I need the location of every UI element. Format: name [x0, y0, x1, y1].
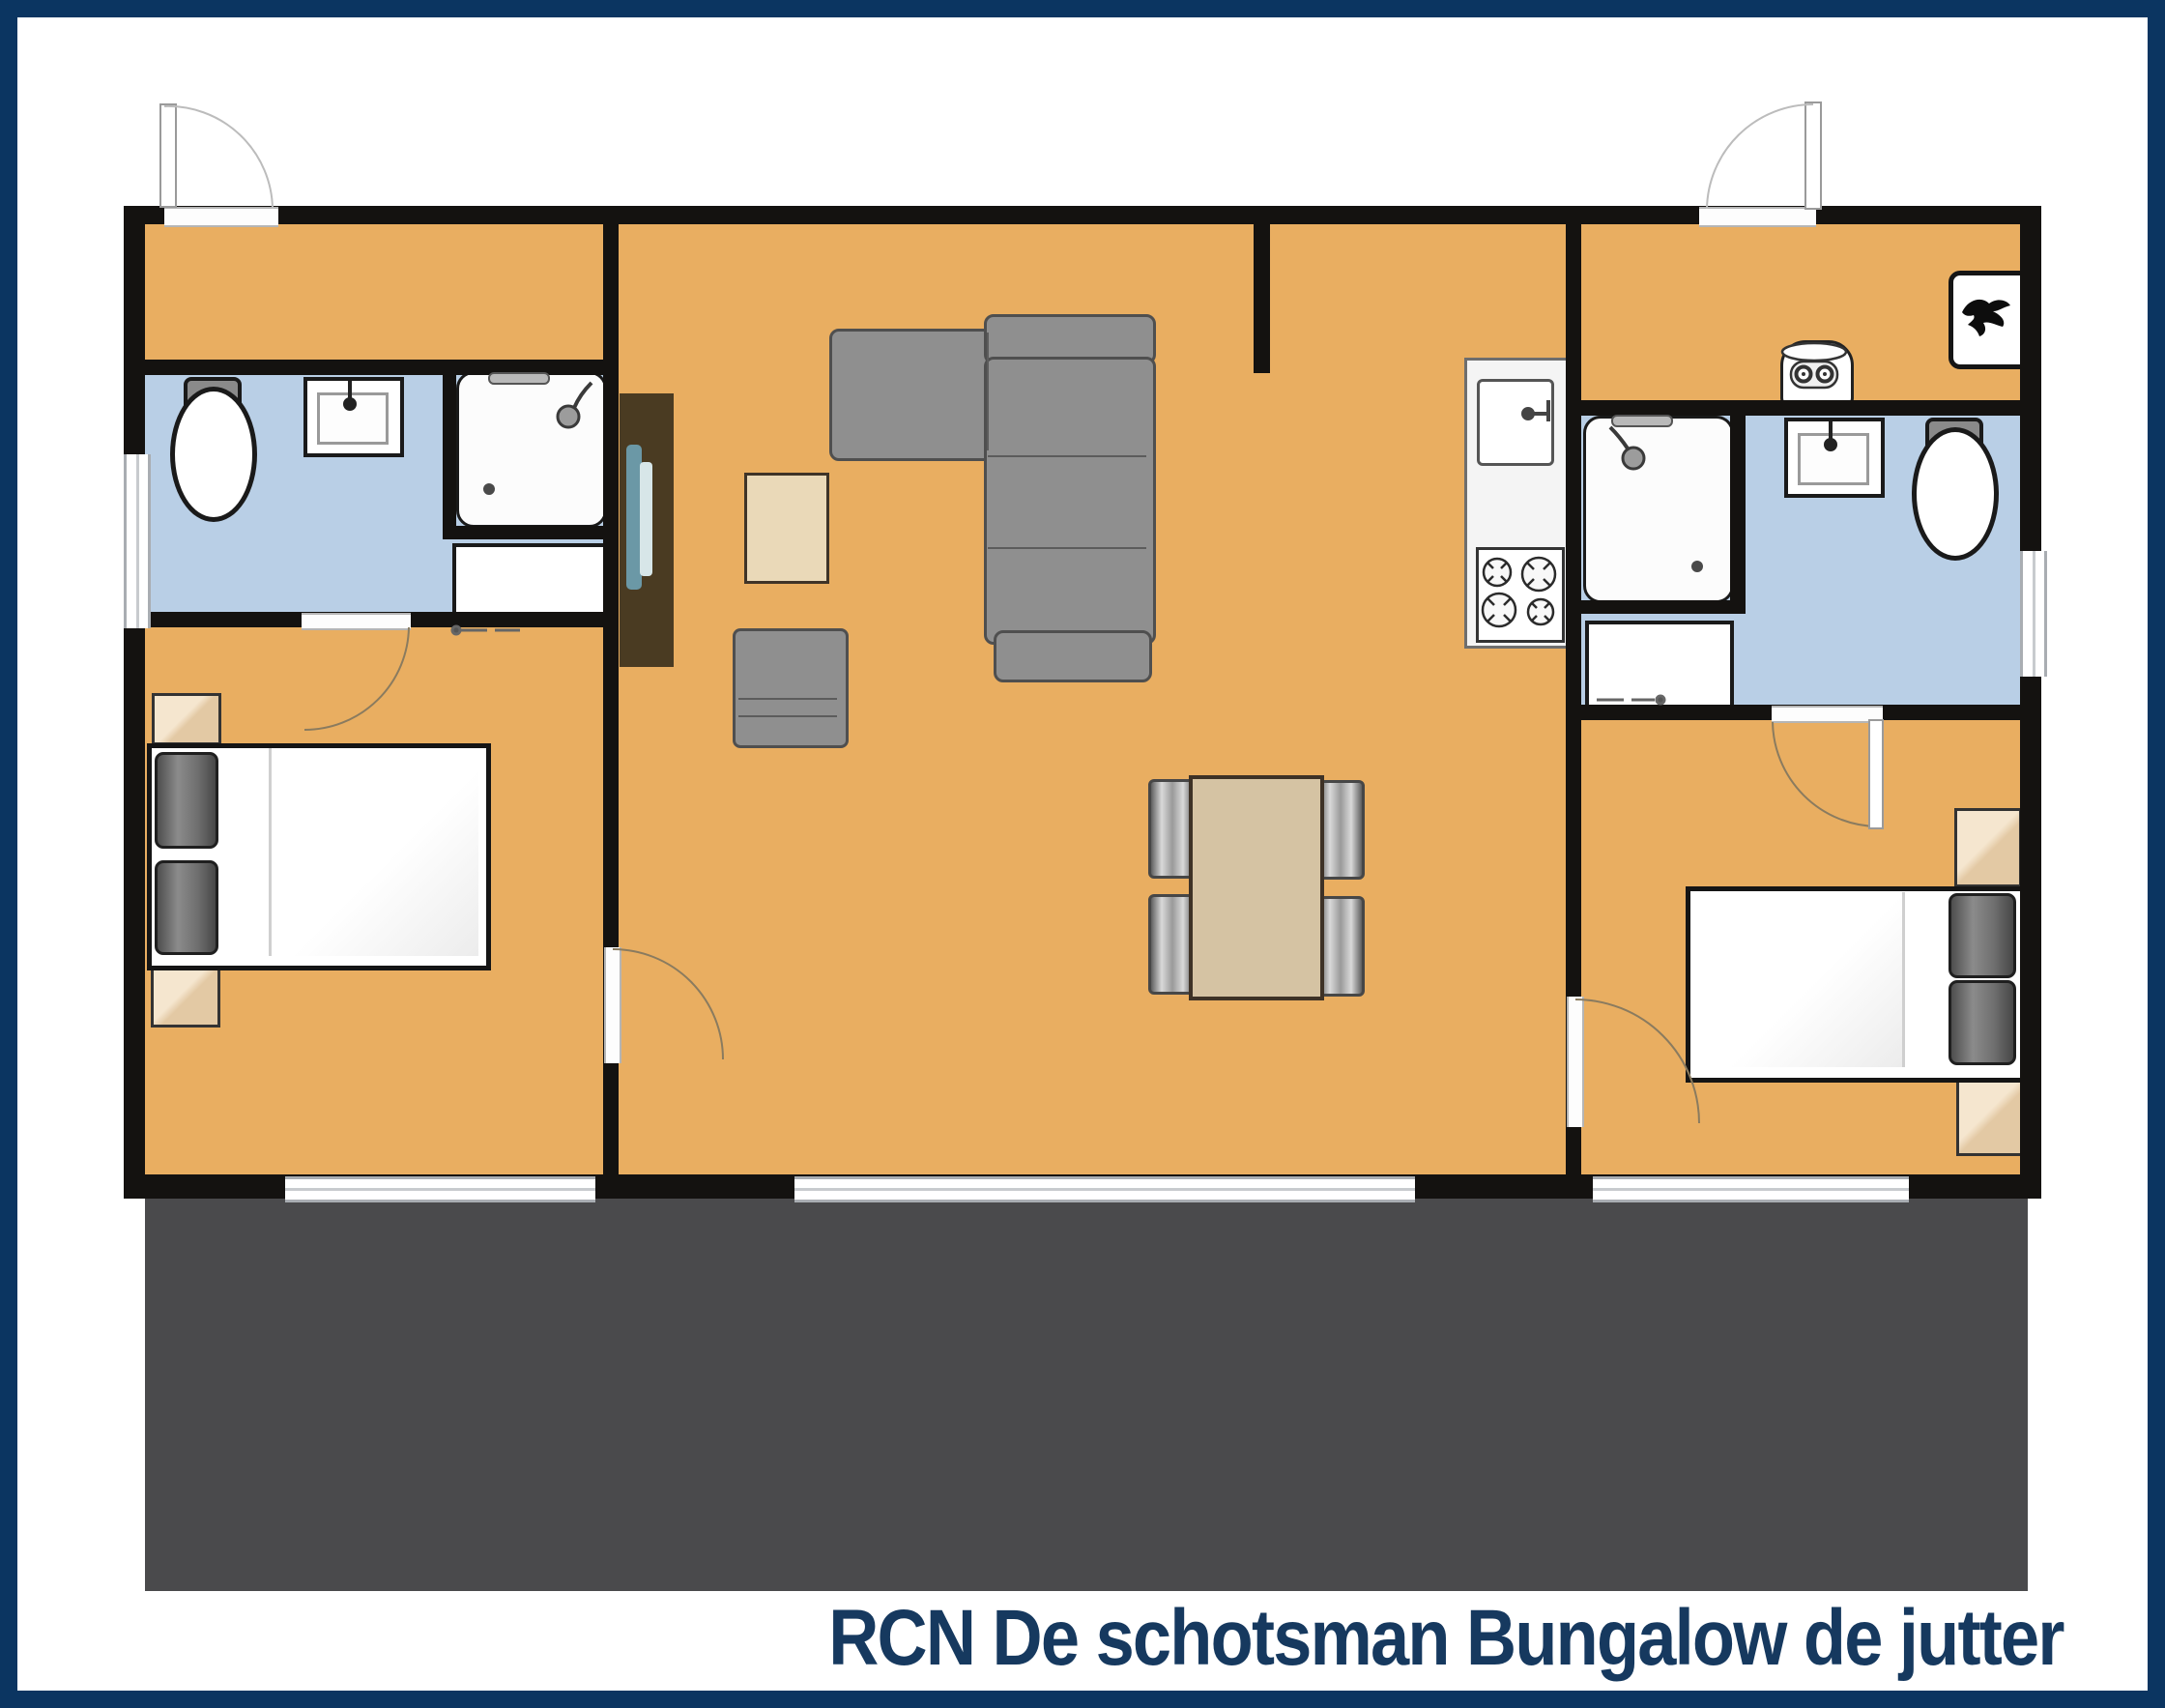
entry-door-icon: [160, 104, 273, 209]
kitchen-faucet-icon: [1523, 400, 1548, 421]
stove-burners: [1483, 558, 1555, 626]
washer-tap-marks: [452, 626, 1664, 704]
upholstery-seams: [738, 333, 1146, 716]
boiler-icon: [1782, 343, 1846, 388]
floorplan-image: RCN De schotsman Bungalow de jutter: [0, 0, 2165, 1708]
shower-icon: [1610, 416, 1703, 572]
plan-title: RCN De schotsman Bungalow de jutter: [828, 1593, 2064, 1684]
plan-details-overlay: [0, 0, 2165, 1708]
door-leaf: [1869, 720, 1883, 828]
coat-hooks-icon: [1962, 300, 2010, 336]
door-swing-icon: [304, 627, 1877, 1123]
entry-door-icon: [1707, 102, 1821, 209]
shower-icon: [483, 373, 592, 495]
